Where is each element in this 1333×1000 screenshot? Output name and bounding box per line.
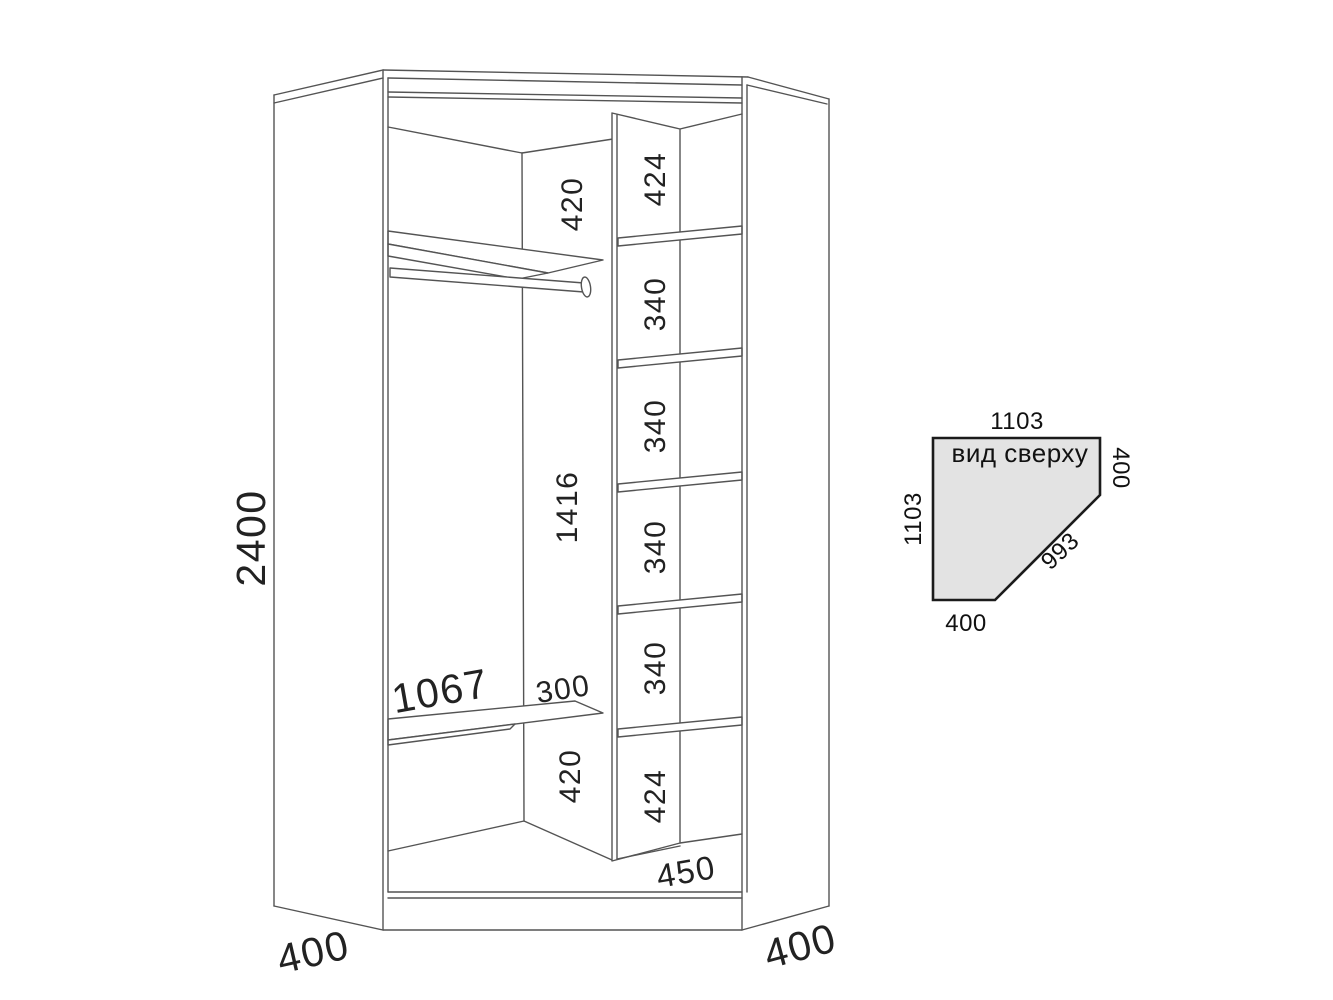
dim-section-1: 424 (639, 152, 672, 207)
dim-left-edge: 1103 (900, 492, 927, 546)
floor-right-edge (524, 821, 612, 860)
dim-shelf-gap: 300 (534, 669, 593, 710)
top-rail-line-1 (388, 92, 742, 98)
dim-top-edge: 1103 (990, 408, 1044, 435)
left-top-slope-outer (274, 70, 383, 95)
left-top-slope-inner (274, 78, 383, 103)
dim-bottom-edge: 400 (945, 610, 987, 637)
back-right-wall-top-edge (522, 139, 613, 153)
dim-section-2: 340 (639, 277, 672, 332)
top-front-edge (383, 70, 748, 77)
top-front-edge-inner (388, 78, 742, 85)
dim-middle-height: 1416 (551, 471, 584, 544)
top-view-title: вид сверху (952, 438, 1089, 468)
dim-section-6: 424 (639, 769, 672, 824)
dim-bottom-gap: 420 (554, 749, 587, 804)
dim-section-3: 340 (639, 399, 672, 454)
niche-floor-edge (680, 834, 742, 843)
drawing-canvas: 2400 420 1416 1067 300 420 424 340 340 3… (0, 0, 1333, 1000)
niche-top-edge (680, 114, 742, 129)
dim-top-gap: 420 (556, 177, 589, 232)
dim-section-5: 340 (639, 641, 672, 696)
dim-column-depth: 450 (654, 848, 719, 895)
dim-left-depth: 400 (273, 921, 354, 982)
dim-section-4: 340 (639, 520, 672, 575)
front-view: 2400 420 1416 1067 300 420 424 340 340 3… (228, 70, 841, 983)
dim-total-height: 2400 (228, 489, 274, 586)
dim-right-depth: 400 (759, 914, 841, 977)
wardrobe-dimension-drawing: 2400 420 1416 1067 300 420 424 340 340 3… (0, 0, 1333, 1000)
back-left-wall-top-edge (388, 127, 522, 153)
top-view: вид сверху 1103 400 1103 993 400 (900, 408, 1134, 637)
floor-left-edge (388, 821, 524, 851)
top-rail-line-2 (388, 97, 742, 103)
clothes-rod-end-cap (580, 276, 592, 297)
upper-shelf-and-rod (388, 231, 603, 298)
dim-right-edge: 400 (1107, 447, 1134, 489)
